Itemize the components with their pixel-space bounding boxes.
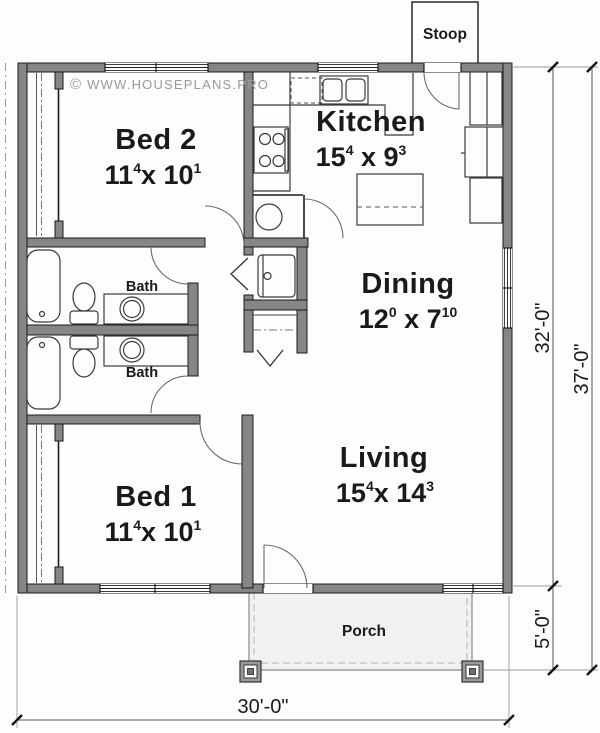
dim-32: 32'-0" [532, 303, 554, 354]
porch-label: Porch [342, 623, 386, 640]
stove [254, 127, 288, 173]
dining-dim: 120 x 710 [359, 304, 458, 334]
bed2-label: Bed 2 [115, 124, 196, 156]
bath1-label: Bath [126, 279, 158, 295]
stoop-label: Stoop [423, 26, 467, 43]
kitchen-window [318, 63, 378, 72]
laundry-door-chevron [231, 258, 248, 290]
bath1-vanity [104, 294, 188, 324]
dishwasher [291, 78, 322, 103]
kitchen-island [357, 174, 423, 225]
upper-cabinet [470, 72, 502, 125]
bed1-label: Bed 1 [115, 481, 196, 513]
living-window [443, 584, 503, 593]
utility-door [304, 199, 343, 238]
stoop-door [424, 72, 459, 109]
bath2-tub [27, 337, 60, 409]
floor-plan-svg: 32'-0" 37'-0" 5'-0" 30'-0" ©WWW.HOUSEPLA… [0, 0, 600, 733]
watermark: ©WWW.HOUSEPLANS.PRO [70, 76, 269, 93]
water-heater [256, 204, 282, 230]
living-label: Living [340, 442, 428, 474]
kitchen-sink [320, 76, 368, 104]
linen-closet [253, 315, 297, 330]
bed2-door [205, 206, 244, 245]
bed1-window [100, 584, 210, 593]
living-dim: 154x 143 [336, 478, 434, 508]
washer-dryer [258, 255, 295, 297]
bed1-dim: 114x 101 [105, 517, 202, 547]
bed1-door [200, 422, 242, 464]
kitchen-dim: 154 x 93 [316, 142, 407, 172]
bath2-toilet [70, 336, 98, 377]
bed2-dim: 114x 101 [105, 160, 202, 190]
bath2-label: Bath [126, 365, 158, 381]
porch-post-left [240, 661, 261, 682]
dining-label: Dining [361, 268, 454, 300]
bath2-door [151, 376, 188, 413]
dim-37: 37'-0" [571, 344, 593, 395]
porch-post-right [462, 661, 483, 682]
bath1-toilet [70, 283, 98, 324]
dim-30: 30'-0" [238, 696, 289, 718]
front-door [264, 545, 307, 588]
bath1-tub [27, 250, 60, 322]
floor-plan-page: 32'-0" 37'-0" 5'-0" 30'-0" ©WWW.HOUSEPLA… [0, 0, 600, 733]
bath2-vanity [104, 336, 188, 366]
linen-door-chevron [257, 350, 283, 366]
pantry-cabinet [470, 178, 502, 223]
dining-window [503, 248, 512, 328]
bed2-window [105, 63, 208, 72]
dim-5: 5'-0" [532, 609, 554, 649]
kitchen-label: Kitchen [316, 106, 426, 138]
refrigerator [461, 127, 503, 177]
